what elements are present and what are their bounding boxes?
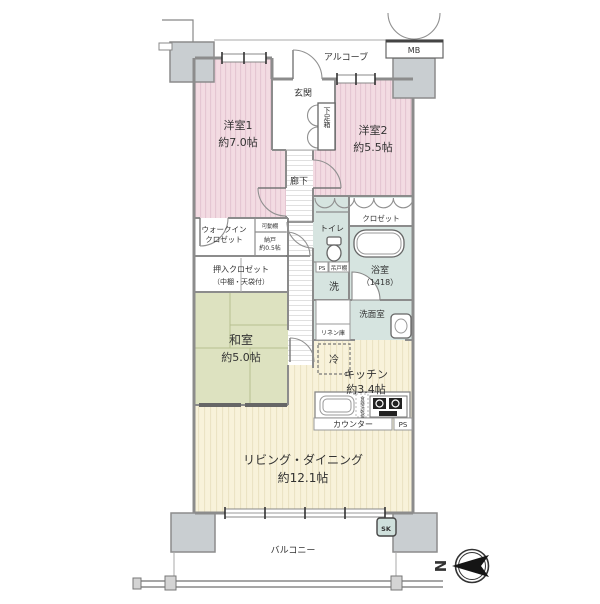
nando-name: 納戸 xyxy=(264,236,276,244)
bedroom1-window xyxy=(222,52,266,64)
bathtub-icon xyxy=(354,230,404,257)
floor-plan-page: MB 下足箱 リネン庫 PS 吊戸棚 冷 xyxy=(0,0,600,600)
kitchen-unit: 食器洗乾燥機 カウンター PS xyxy=(314,392,412,430)
fridge-label: 冷 xyxy=(329,353,339,366)
kitchen-size: 約3.4帖 xyxy=(346,382,386,396)
toilet-icon xyxy=(327,237,341,261)
floor-plan: MB 下足箱 リネン庫 PS 吊戸棚 冷 xyxy=(0,0,600,600)
bath-name: 浴室 xyxy=(371,264,389,276)
nando-size: 約0.5帖 xyxy=(259,244,281,252)
wic-label-2: クロゼット xyxy=(205,234,243,244)
ps-label: PS xyxy=(399,421,408,429)
washitsu-size: 約5.0帖 xyxy=(221,350,261,364)
ps-small-label: PS xyxy=(319,266,326,272)
shoebox: 下足箱 xyxy=(318,103,335,150)
washitsu-name: 和室 xyxy=(229,332,253,347)
meter-box: MB xyxy=(386,13,443,58)
oshiire-label-2: （中棚・天袋付） xyxy=(213,277,269,286)
shelf-label: 可動棚 xyxy=(262,222,279,230)
shoebox-label: 下足箱 xyxy=(323,107,331,129)
bedroom1-name: 洋室1 xyxy=(224,118,253,132)
bedroom2-size: 約5.5帖 xyxy=(353,140,393,154)
corridor-label: 廊下 xyxy=(290,175,308,187)
closet2-label: クロゼット xyxy=(362,213,400,223)
bedroom1-size: 約7.0帖 xyxy=(218,135,258,149)
living-size: 約12.1帖 xyxy=(278,470,329,485)
linen-cabinet: リネン庫 xyxy=(316,300,350,340)
wic-label-1: ウォークイン xyxy=(202,225,247,234)
balcony-label: バルコニー xyxy=(271,545,316,556)
toilet-label: トイレ xyxy=(320,224,344,233)
cupboard-label: 吊戸棚 xyxy=(331,264,348,272)
pillar-top-left xyxy=(170,42,214,82)
bedroom2-name: 洋室2 xyxy=(359,123,388,137)
laundry-label: 洗 xyxy=(329,281,339,293)
pillar-bottom-right xyxy=(393,513,437,552)
alcove-label: アルコーブ xyxy=(324,51,368,63)
genkan-label: 玄関 xyxy=(294,87,312,99)
floors xyxy=(195,40,413,513)
pillar-bottom-left xyxy=(171,513,215,552)
living-name: リビング・ダイニング xyxy=(243,452,363,467)
north-compass: N xyxy=(432,550,489,583)
sk-label: SK xyxy=(381,525,392,533)
linen-label: リネン庫 xyxy=(321,329,345,337)
washroom-label: 洗面室 xyxy=(359,309,385,320)
oshiire-label-1: 押入クロゼット xyxy=(213,264,269,274)
kitchen-name: キッチン xyxy=(344,368,388,381)
washbasin-icon xyxy=(391,314,411,338)
ps-cupboard-boxes: PS 吊戸棚 xyxy=(316,262,349,272)
bath-size: （1418） xyxy=(362,278,398,287)
slop-sink: SK xyxy=(377,518,396,536)
north-label: N xyxy=(432,560,450,573)
living-window xyxy=(225,507,385,519)
mb-label: MB xyxy=(408,46,420,55)
counter-label: カウンター xyxy=(333,420,373,429)
bedroom2-window xyxy=(337,73,375,85)
stove-icon xyxy=(370,396,407,417)
